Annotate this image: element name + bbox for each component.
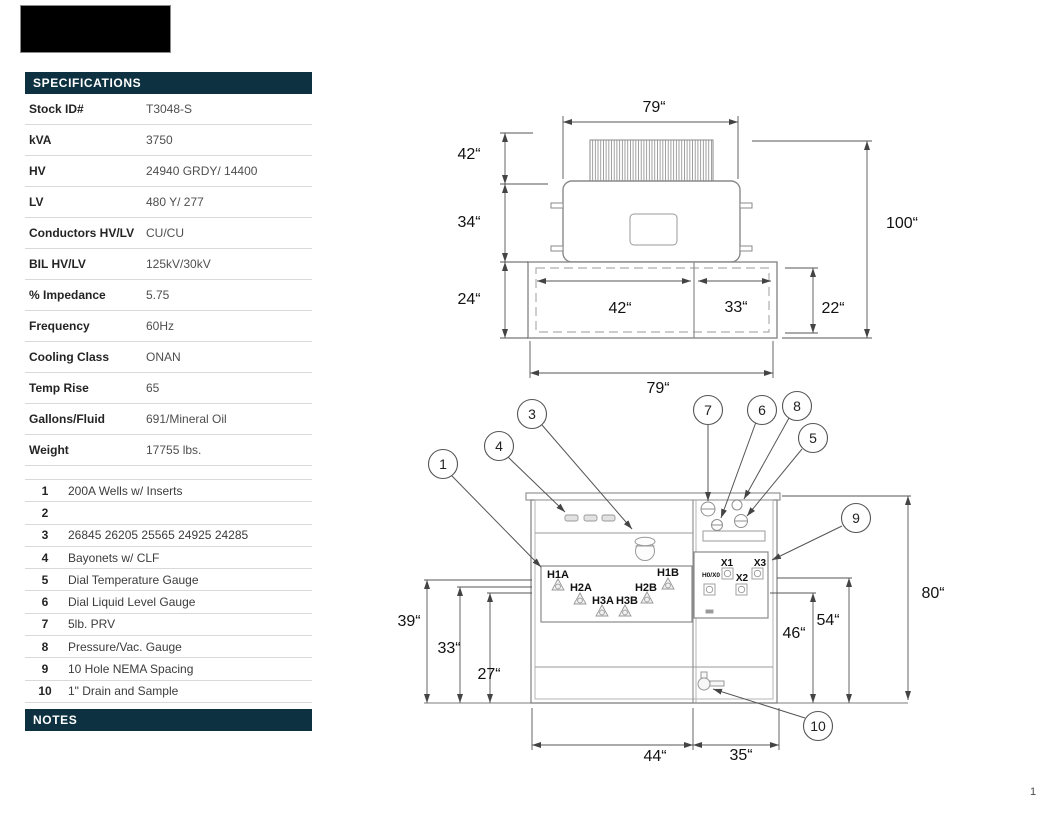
lv-terminal-label: H0/X0	[702, 572, 720, 579]
dim-h3-height: 27“	[477, 666, 500, 683]
lv-terminal-icon	[722, 568, 733, 579]
dim-lv-section-width: 33“	[724, 299, 747, 316]
fuse-wells	[565, 515, 615, 521]
dim-lv-upper-height: 54“	[816, 612, 839, 629]
callout-5: 5	[799, 424, 828, 453]
pressure-vac-gauge-icon	[732, 500, 742, 510]
dim-lv-lower-height: 46“	[782, 625, 805, 642]
hv-bushing-label: H1B	[657, 567, 679, 579]
callout-7-label: 7	[704, 402, 712, 418]
radiator-bank	[590, 140, 713, 181]
nameplate-front	[703, 531, 765, 541]
lv-terminal-icon	[704, 584, 715, 595]
dim-top-width: 79“	[642, 99, 665, 116]
lv-terminal-icon	[736, 584, 747, 595]
tap-changer	[635, 537, 655, 560]
hv-bushing-label: H3A	[592, 595, 614, 607]
front-view-drawing: H1A H2A H3A H3B H2B H1B X1 X3 H0/X0 X2	[397, 392, 944, 766]
dim-cabinet-depth: 24“	[457, 291, 480, 308]
callout-4-label: 4	[495, 438, 503, 454]
dim-overall-depth: 100“	[886, 215, 918, 232]
technical-drawings: 79“ 42“ 34“ 24“ 100“ 42“ 33“ 22“ 79“	[0, 0, 1056, 816]
dim-h2-height: 33“	[437, 640, 460, 657]
cabinet-top-rail	[526, 493, 780, 500]
dim-h1-height: 39“	[397, 613, 420, 630]
lv-terminal-label: X3	[754, 558, 767, 569]
callout-7: 7	[694, 396, 723, 425]
hv-bushing-label: H1A	[547, 569, 569, 581]
callout-1: 1	[429, 450, 458, 479]
ground-pad	[706, 610, 713, 613]
callout-10-label: 10	[810, 718, 826, 734]
callout-9-label: 9	[852, 510, 860, 526]
callout-4: 4	[485, 432, 514, 461]
hv-bushing-label: H2A	[570, 582, 592, 594]
lv-terminal-label: X1	[721, 558, 734, 569]
dim-hv-section-width: 44“	[643, 748, 666, 765]
callout-6: 6	[748, 396, 777, 425]
top-view-drawing: 79“ 42“ 34“ 24“ 100“ 42“ 33“ 22“ 79“	[457, 99, 918, 397]
dim-hv-section-width: 42“	[608, 300, 631, 317]
nameplate-top-view	[630, 214, 677, 245]
callout-9: 9	[842, 504, 871, 533]
hv-bushing-label: H3B	[616, 595, 638, 607]
callout-5-label: 5	[809, 430, 817, 446]
callout-6-label: 6	[758, 402, 766, 418]
callout-10: 10	[804, 712, 833, 741]
spec-sheet-page: SPECIFICATIONS Stock ID# T3048-S kVA 375…	[0, 0, 1056, 816]
callout-3: 3	[518, 400, 547, 429]
callout-8: 8	[783, 392, 812, 421]
dim-lv-section-width: 35“	[729, 747, 752, 764]
hv-bushing-label: H2B	[635, 582, 657, 594]
dim-cabinet-inner-depth: 22“	[821, 300, 844, 317]
lv-terminal-label: X2	[736, 573, 749, 584]
lv-terminal-icon	[752, 568, 763, 579]
callout-3-label: 3	[528, 406, 536, 422]
callout-1-label: 1	[439, 456, 447, 472]
dim-tank-depth: 34“	[457, 214, 480, 231]
dim-bottom-width: 79“	[646, 380, 669, 397]
dim-radiator-depth: 42“	[457, 146, 480, 163]
callout-8-label: 8	[793, 398, 801, 414]
dim-overall-height: 80“	[921, 585, 944, 602]
